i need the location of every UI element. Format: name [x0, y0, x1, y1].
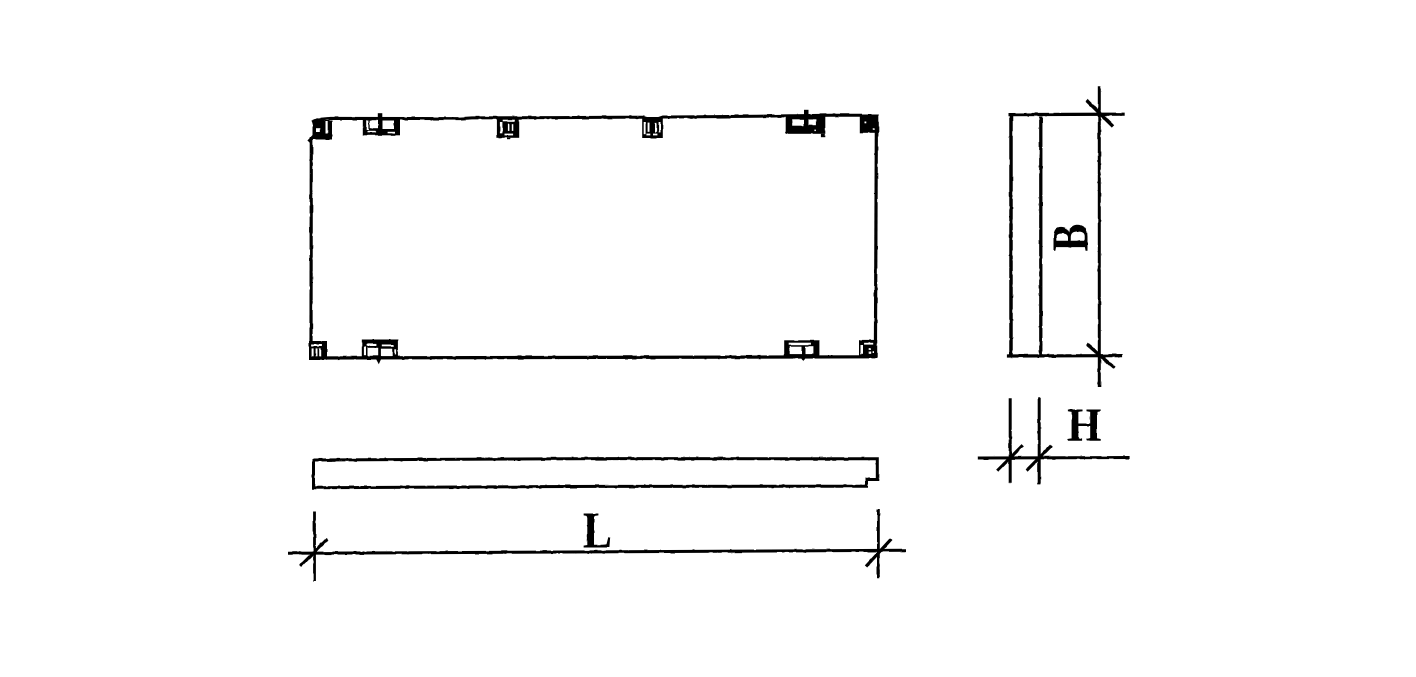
svg-text:H: H	[1067, 398, 1101, 451]
svg-text:B: B	[1042, 224, 1099, 252]
svg-text:L: L	[583, 502, 612, 559]
